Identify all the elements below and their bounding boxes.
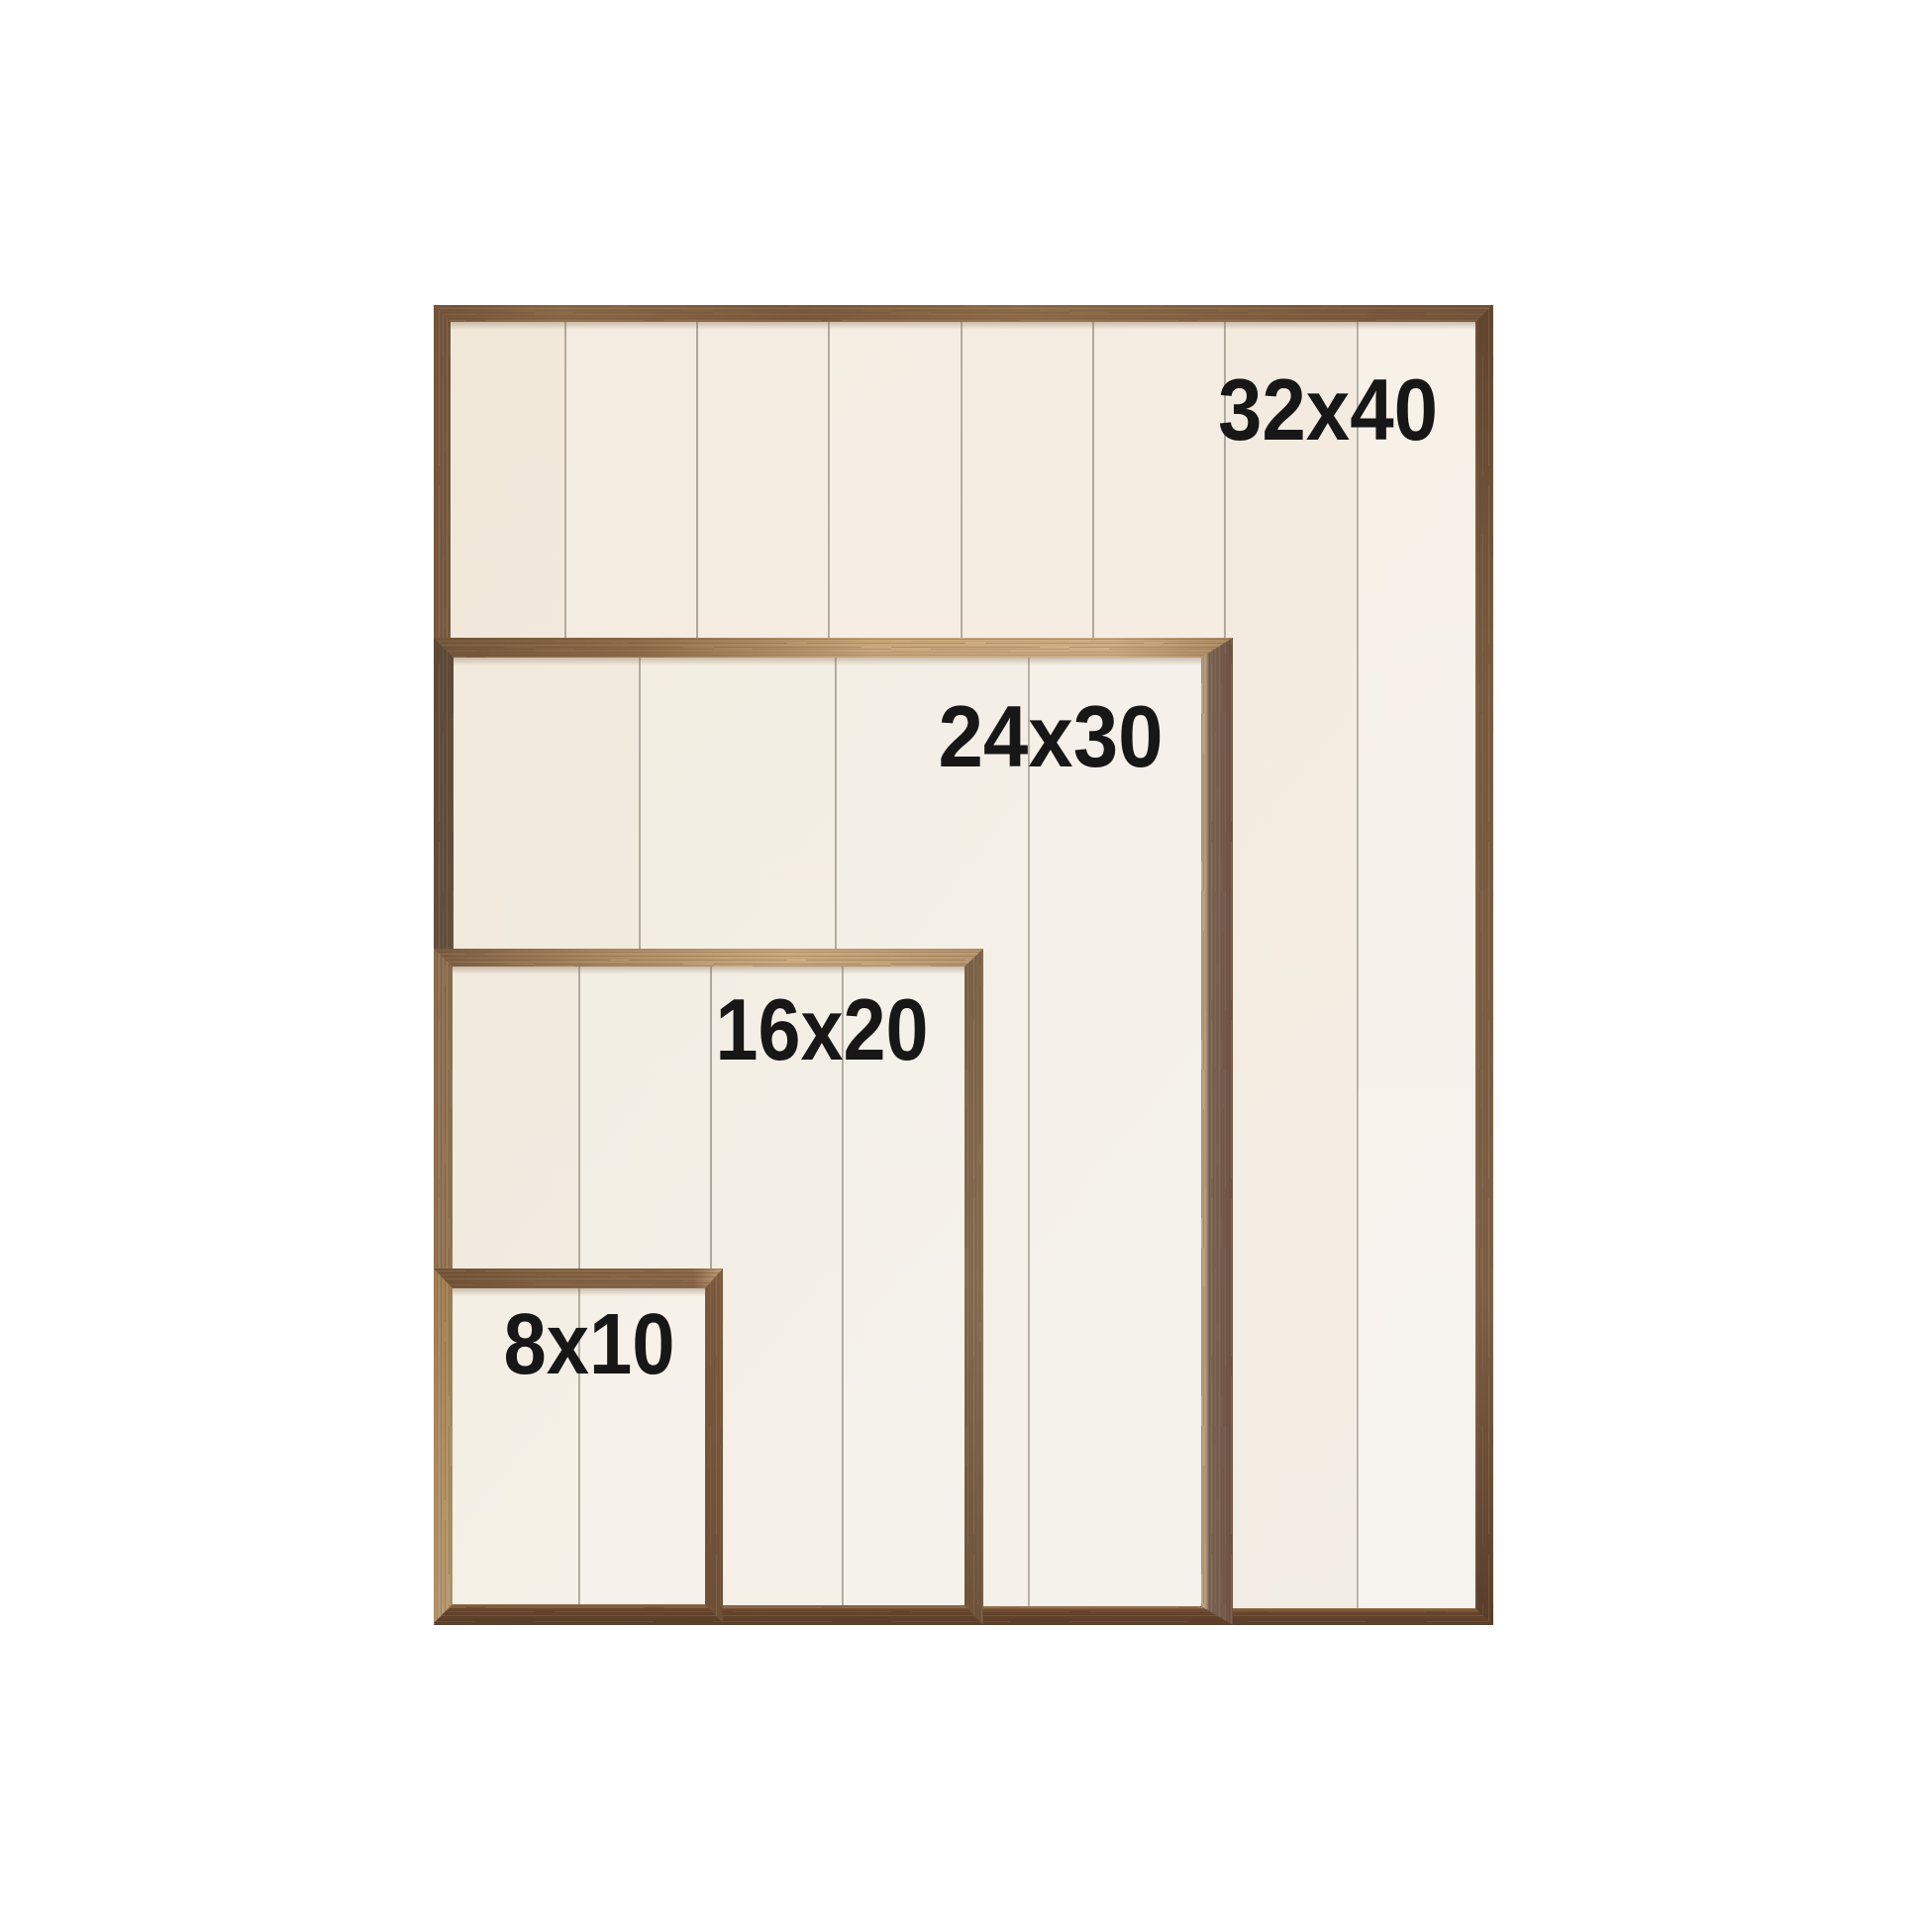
svg-text:24x30: 24x30 xyxy=(939,687,1164,785)
svg-text:32x40: 32x40 xyxy=(1218,360,1438,458)
svg-text:8x10: 8x10 xyxy=(504,1296,675,1392)
svg-text:16x20: 16x20 xyxy=(716,980,929,1078)
